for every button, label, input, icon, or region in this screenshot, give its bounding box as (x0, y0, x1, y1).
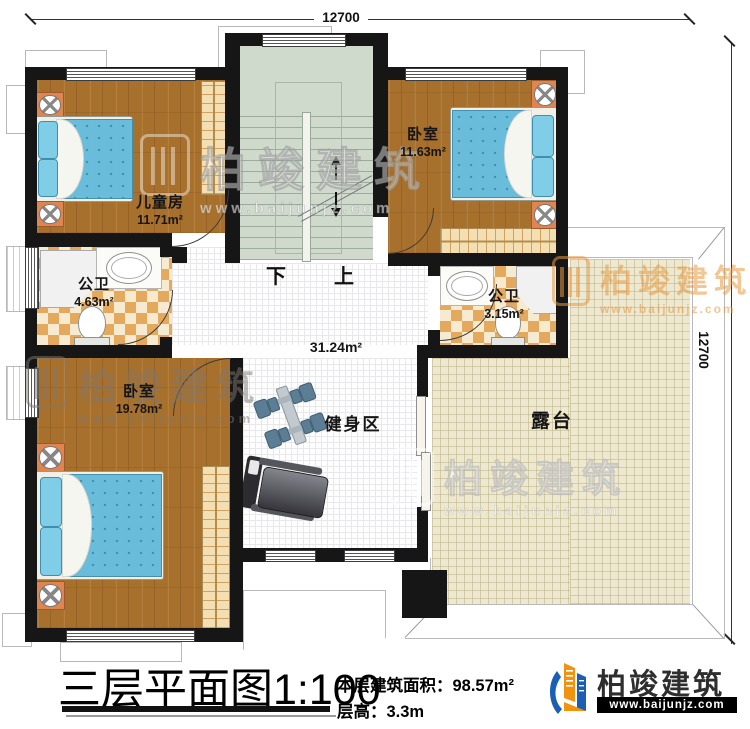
dim-tick-right-bottom (723, 633, 735, 645)
floor-height-value: 3.3m (387, 703, 425, 721)
dim-line-right (731, 44, 732, 644)
bedroom-bl-nightstand (36, 581, 65, 610)
floor-plan-canvas: 12700 12700 (0, 0, 750, 729)
children-bed-pillow (38, 159, 58, 197)
label-bath-left: 公卫 4.63m² (54, 276, 134, 310)
label-gym: 健身区 (312, 414, 394, 435)
room-area: 3.15m² (464, 307, 544, 323)
room-area: 19.78m² (89, 402, 189, 418)
wall (417, 345, 568, 358)
wall (25, 67, 37, 245)
floor-height-label: 层高： (337, 703, 387, 721)
parapet-corner-diagonal (698, 227, 725, 259)
label-gym-area-value: 31.24m² (296, 339, 376, 357)
title-underline (62, 706, 330, 712)
children-bed-pillow (38, 121, 58, 159)
parapet-outer-right (724, 227, 725, 639)
window (25, 247, 39, 309)
room-name: 儿童房 (110, 194, 210, 213)
bedroom-bl-nightstand (36, 443, 65, 472)
window (66, 630, 195, 642)
toilet-left (78, 306, 106, 340)
floor-area-info: 本层建筑面积：98.57m² (337, 672, 514, 696)
wall (417, 507, 428, 559)
dim-tick-right-top (723, 35, 735, 47)
parapet-inner-top (566, 257, 693, 258)
bedroom-tr-nightstand (531, 80, 559, 109)
bedroom-bl-bed-pillow (40, 527, 62, 576)
hall-floor (172, 263, 428, 345)
parapet-inner-bottom (430, 604, 693, 605)
bedroom-bl-wardrobe (202, 466, 230, 629)
children-nightstand (36, 201, 64, 227)
wall (388, 253, 568, 266)
stair-label-up: 上 (326, 260, 362, 289)
window (405, 68, 527, 81)
room-name: 公卫 (464, 288, 544, 307)
room-name: 露台 (516, 410, 588, 434)
wall (373, 33, 388, 217)
wall (172, 247, 187, 263)
wall (556, 67, 568, 259)
floor-area-value: 98.57m² (453, 677, 514, 695)
wall (160, 337, 172, 349)
label-terrace: 露台 (516, 410, 588, 434)
parapet-outer-bottom (405, 638, 725, 639)
wall (225, 33, 240, 263)
dim-value-right: 12700 (694, 322, 712, 378)
terrace-sliding-door (416, 396, 426, 456)
bedroom-bl-bed-pillow (40, 477, 62, 527)
room-name: 公卫 (54, 276, 134, 295)
parapet-corner-diagonal (692, 604, 724, 639)
room-area: 11.63m² (373, 145, 473, 161)
label-bath-right: 公卫 3.15m² (464, 288, 544, 322)
stair-arrow-down (331, 208, 341, 217)
terrace-floor (432, 358, 570, 604)
dim-value-top: 12700 (314, 8, 368, 27)
brand-logo-icon (548, 658, 592, 718)
title-underline-shadow (66, 715, 336, 717)
children-wardrobe (201, 81, 227, 195)
label-bedroom-tr: 卧室 11.63m² (373, 126, 473, 160)
room-area: 31.24m² (296, 339, 376, 357)
wall (160, 233, 172, 257)
label-children-room: 儿童房 11.71m² (110, 194, 210, 228)
label-bedroom-bl: 卧室 19.78m² (89, 383, 189, 417)
room-name: 健身区 (312, 414, 394, 435)
brand-website: www.baijunjz.com (597, 697, 737, 713)
eave-line (243, 590, 244, 650)
floor-area-label: 本层建筑面积： (337, 677, 453, 695)
bedroom-tr-wardrobe (440, 228, 558, 255)
wall (25, 345, 172, 358)
parapet-outer-top (568, 227, 725, 228)
children-nightstand (36, 92, 64, 118)
wall (25, 233, 172, 247)
bedroom-tr-nightstand (531, 201, 559, 229)
wall (230, 358, 243, 642)
terrace-sliding-door (421, 452, 431, 511)
room-name: 卧室 (373, 126, 473, 145)
window (265, 550, 316, 562)
stair-stringer (302, 112, 311, 262)
terrace-floor (570, 259, 690, 604)
room-name: 卧室 (89, 383, 189, 402)
window (25, 368, 39, 418)
room-area: 4.63m² (54, 295, 134, 311)
bedroom-tr-bed-pillow (532, 115, 554, 157)
wall (428, 330, 440, 345)
wall (556, 255, 568, 358)
eave-line (243, 590, 386, 591)
bedroom-tr-bed-pillow (532, 157, 554, 197)
window (344, 550, 395, 562)
stair-arrow-stem (335, 192, 337, 208)
window (262, 34, 346, 47)
floor-height-info: 层高：3.3m (337, 698, 424, 722)
stair-arrow-stem (335, 164, 337, 180)
column (402, 570, 447, 618)
eave-line (385, 590, 386, 638)
parapet-inner-right (692, 257, 693, 605)
window (66, 68, 196, 81)
wall (428, 266, 440, 276)
room-area: 11.71m² (110, 213, 210, 229)
stair-label-down: 下 (258, 260, 294, 289)
